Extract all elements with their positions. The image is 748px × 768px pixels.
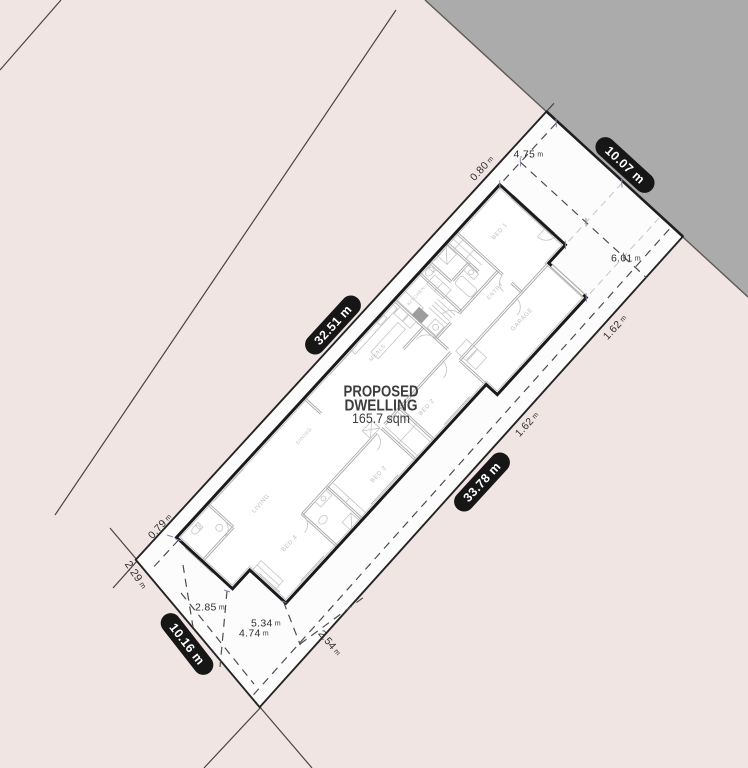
svg-text:165.7 sqm: 165.7 sqm [352,411,410,426]
